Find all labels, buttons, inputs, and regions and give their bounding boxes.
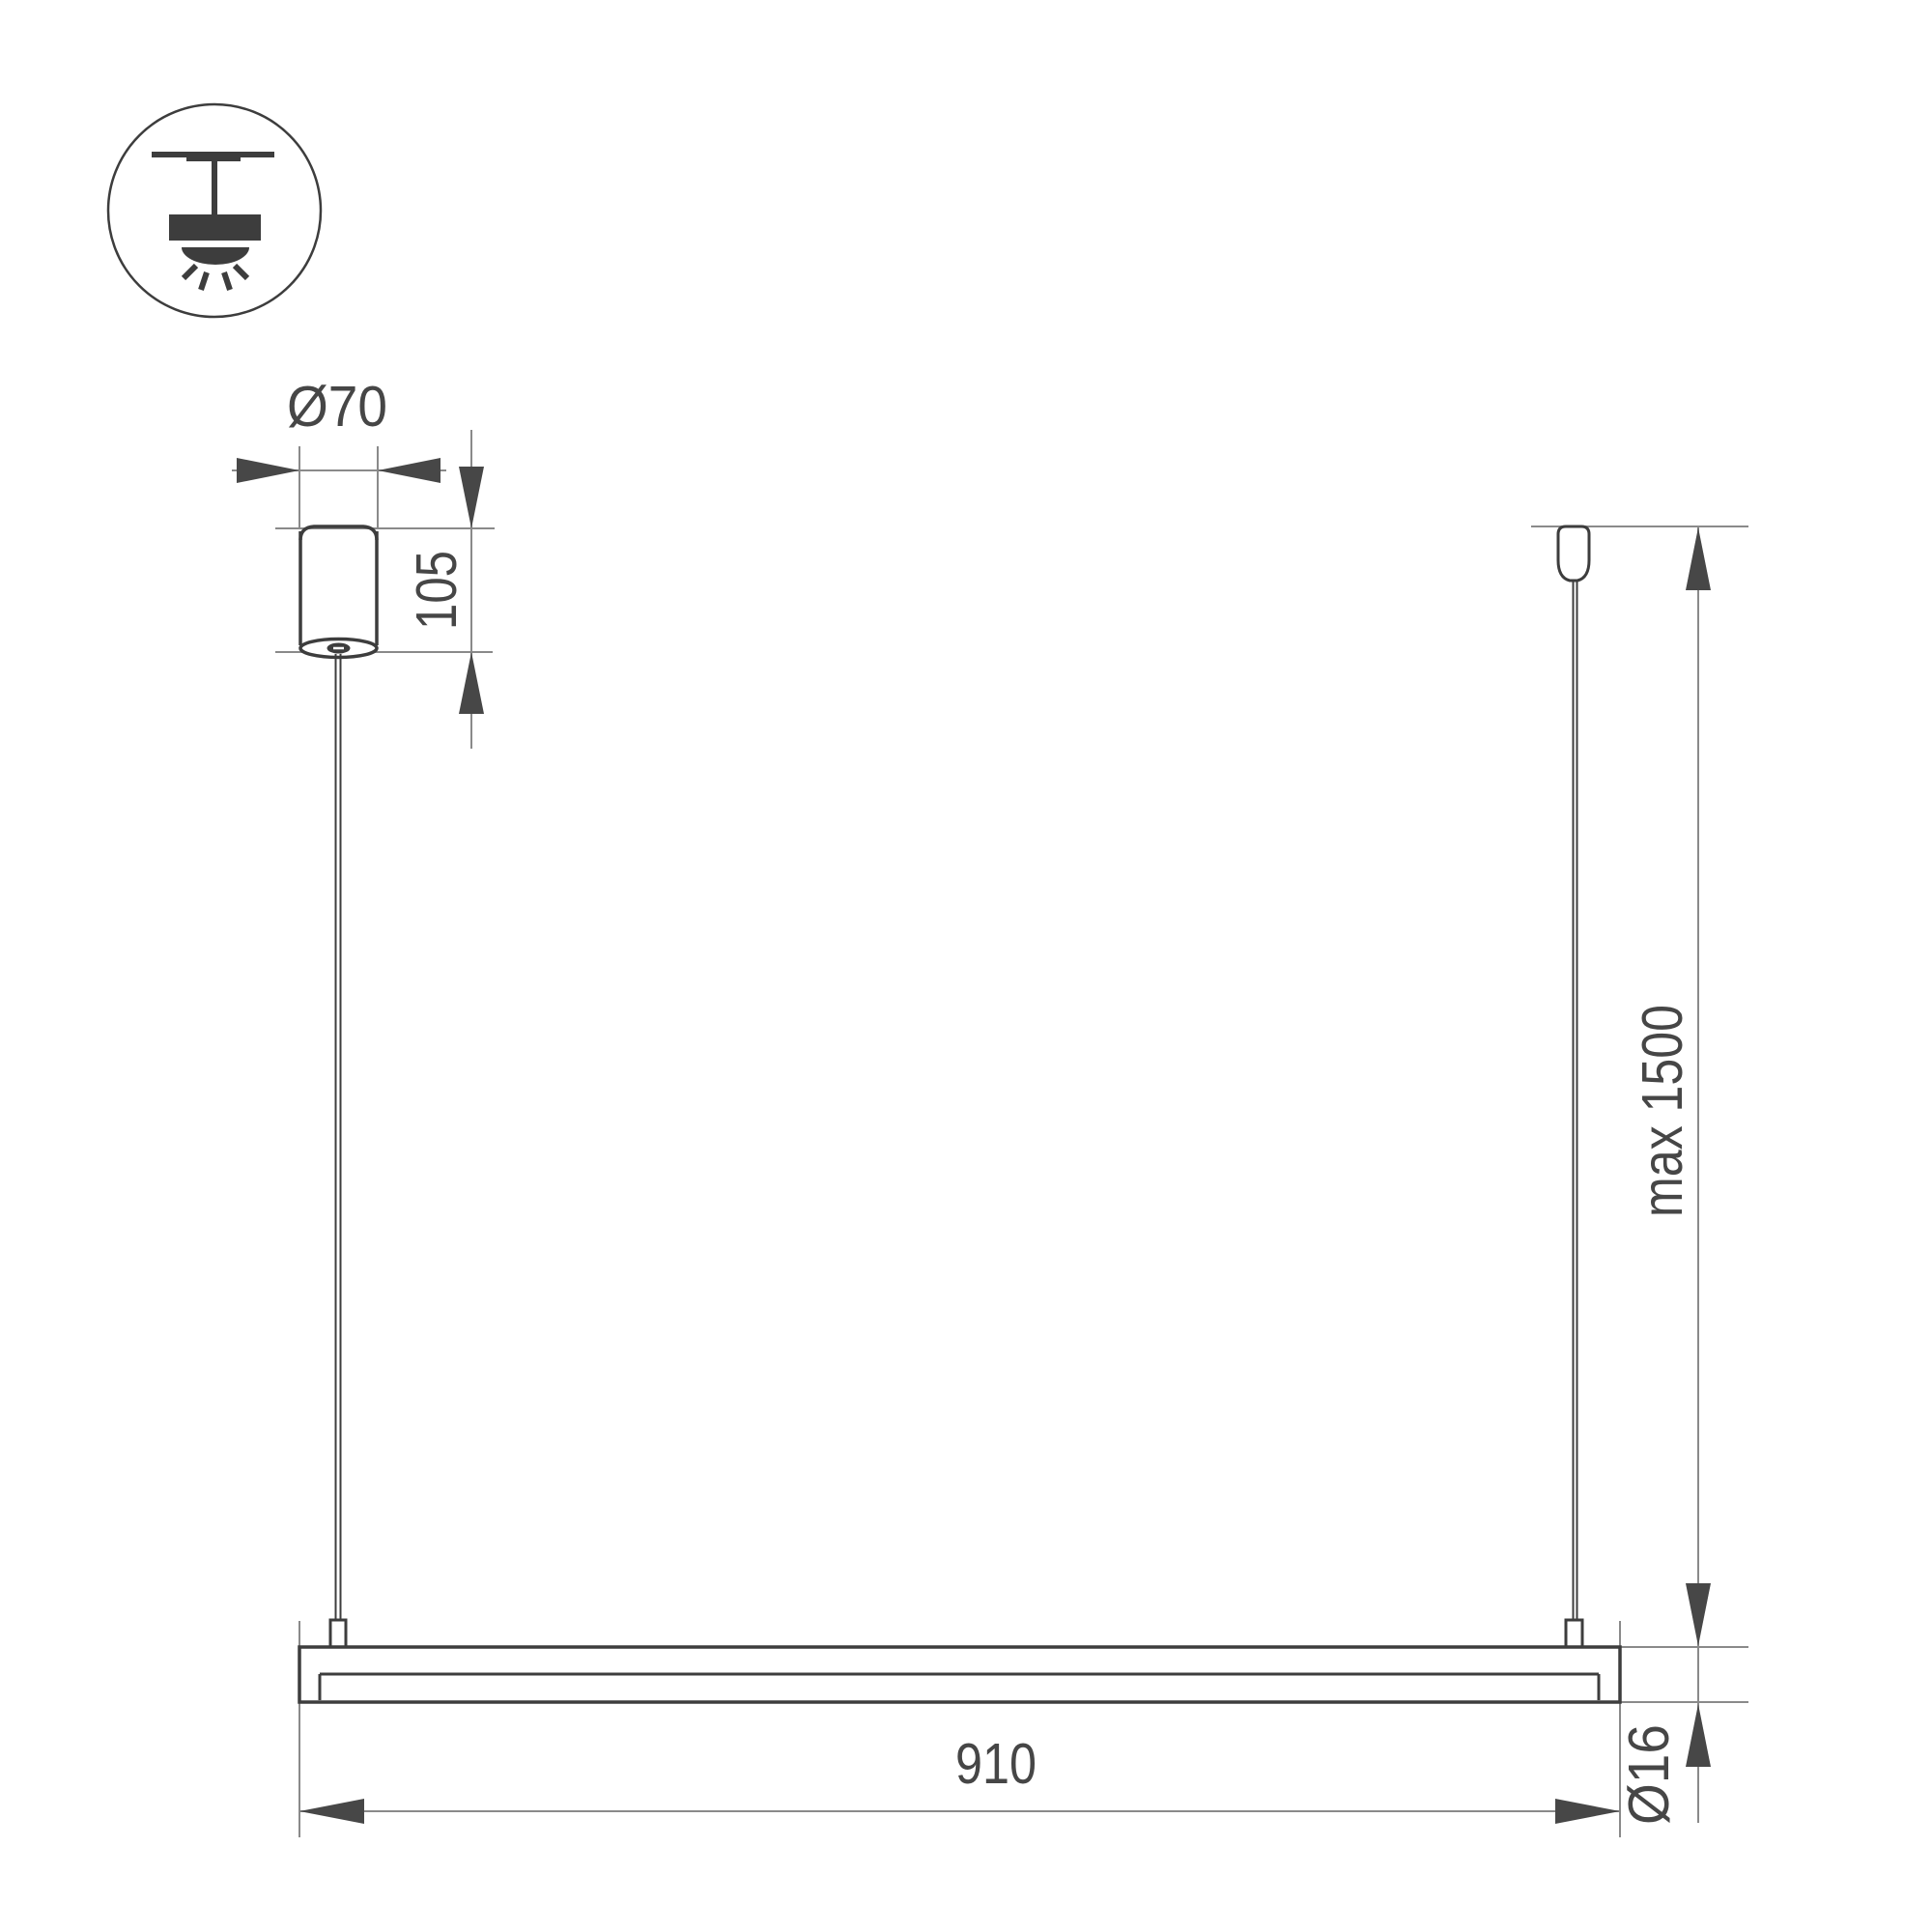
icon-stem <box>212 157 217 216</box>
label-canopy-height: 105 <box>405 551 469 630</box>
drawing-canvas: Ø70 105 max 1500 910 Ø16 <box>0 0 1932 1932</box>
left-cable-connector <box>330 1620 346 1647</box>
dimension-arrows <box>237 458 1711 1824</box>
icon-lamp-body <box>169 214 261 241</box>
icon-light-rays <box>184 266 247 290</box>
right-cable-connector <box>1566 1620 1582 1647</box>
dimension-lines <box>232 430 1748 1837</box>
light-bar <box>299 1647 1620 1702</box>
canopy <box>300 526 377 658</box>
icon-lamp-dome <box>182 247 249 265</box>
label-bar-diameter: Ø16 <box>1617 1724 1681 1825</box>
ceiling-mount-icon <box>108 104 321 317</box>
left-suspension-cable <box>330 654 346 1647</box>
ceiling-grip <box>1558 526 1589 581</box>
label-canopy-diameter: Ø70 <box>287 375 387 439</box>
label-max-suspension: max 1500 <box>1631 1005 1694 1217</box>
technical-drawing: Ø70 105 max 1500 910 Ø16 <box>0 0 1932 1932</box>
right-suspension <box>1558 526 1589 1647</box>
label-bar-length: 910 <box>955 1732 1037 1796</box>
